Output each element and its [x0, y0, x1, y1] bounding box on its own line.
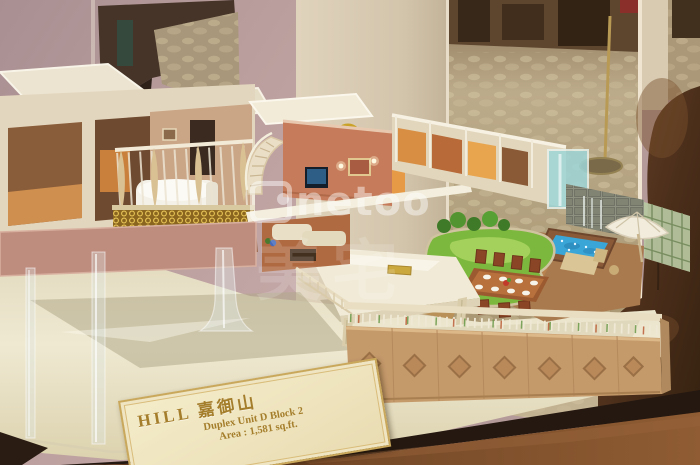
coffee-table: [290, 249, 316, 261]
acrylic-column: [26, 268, 35, 438]
wall-sconce: [339, 164, 344, 169]
wall-art: [349, 159, 370, 175]
bedroom-wing: [0, 64, 272, 276]
living-area: [262, 214, 350, 272]
sofa-model: [302, 231, 346, 246]
salmon-wall: [283, 120, 392, 206]
gold-tray: [388, 265, 412, 275]
wall-picture: [163, 129, 176, 140]
photo-architectural-model: HILL 嘉御山 Duplex Unit D Block 2 Area : 1,…: [0, 0, 700, 465]
acrylic-column: [92, 252, 105, 444]
wall-sconce: [372, 159, 377, 164]
